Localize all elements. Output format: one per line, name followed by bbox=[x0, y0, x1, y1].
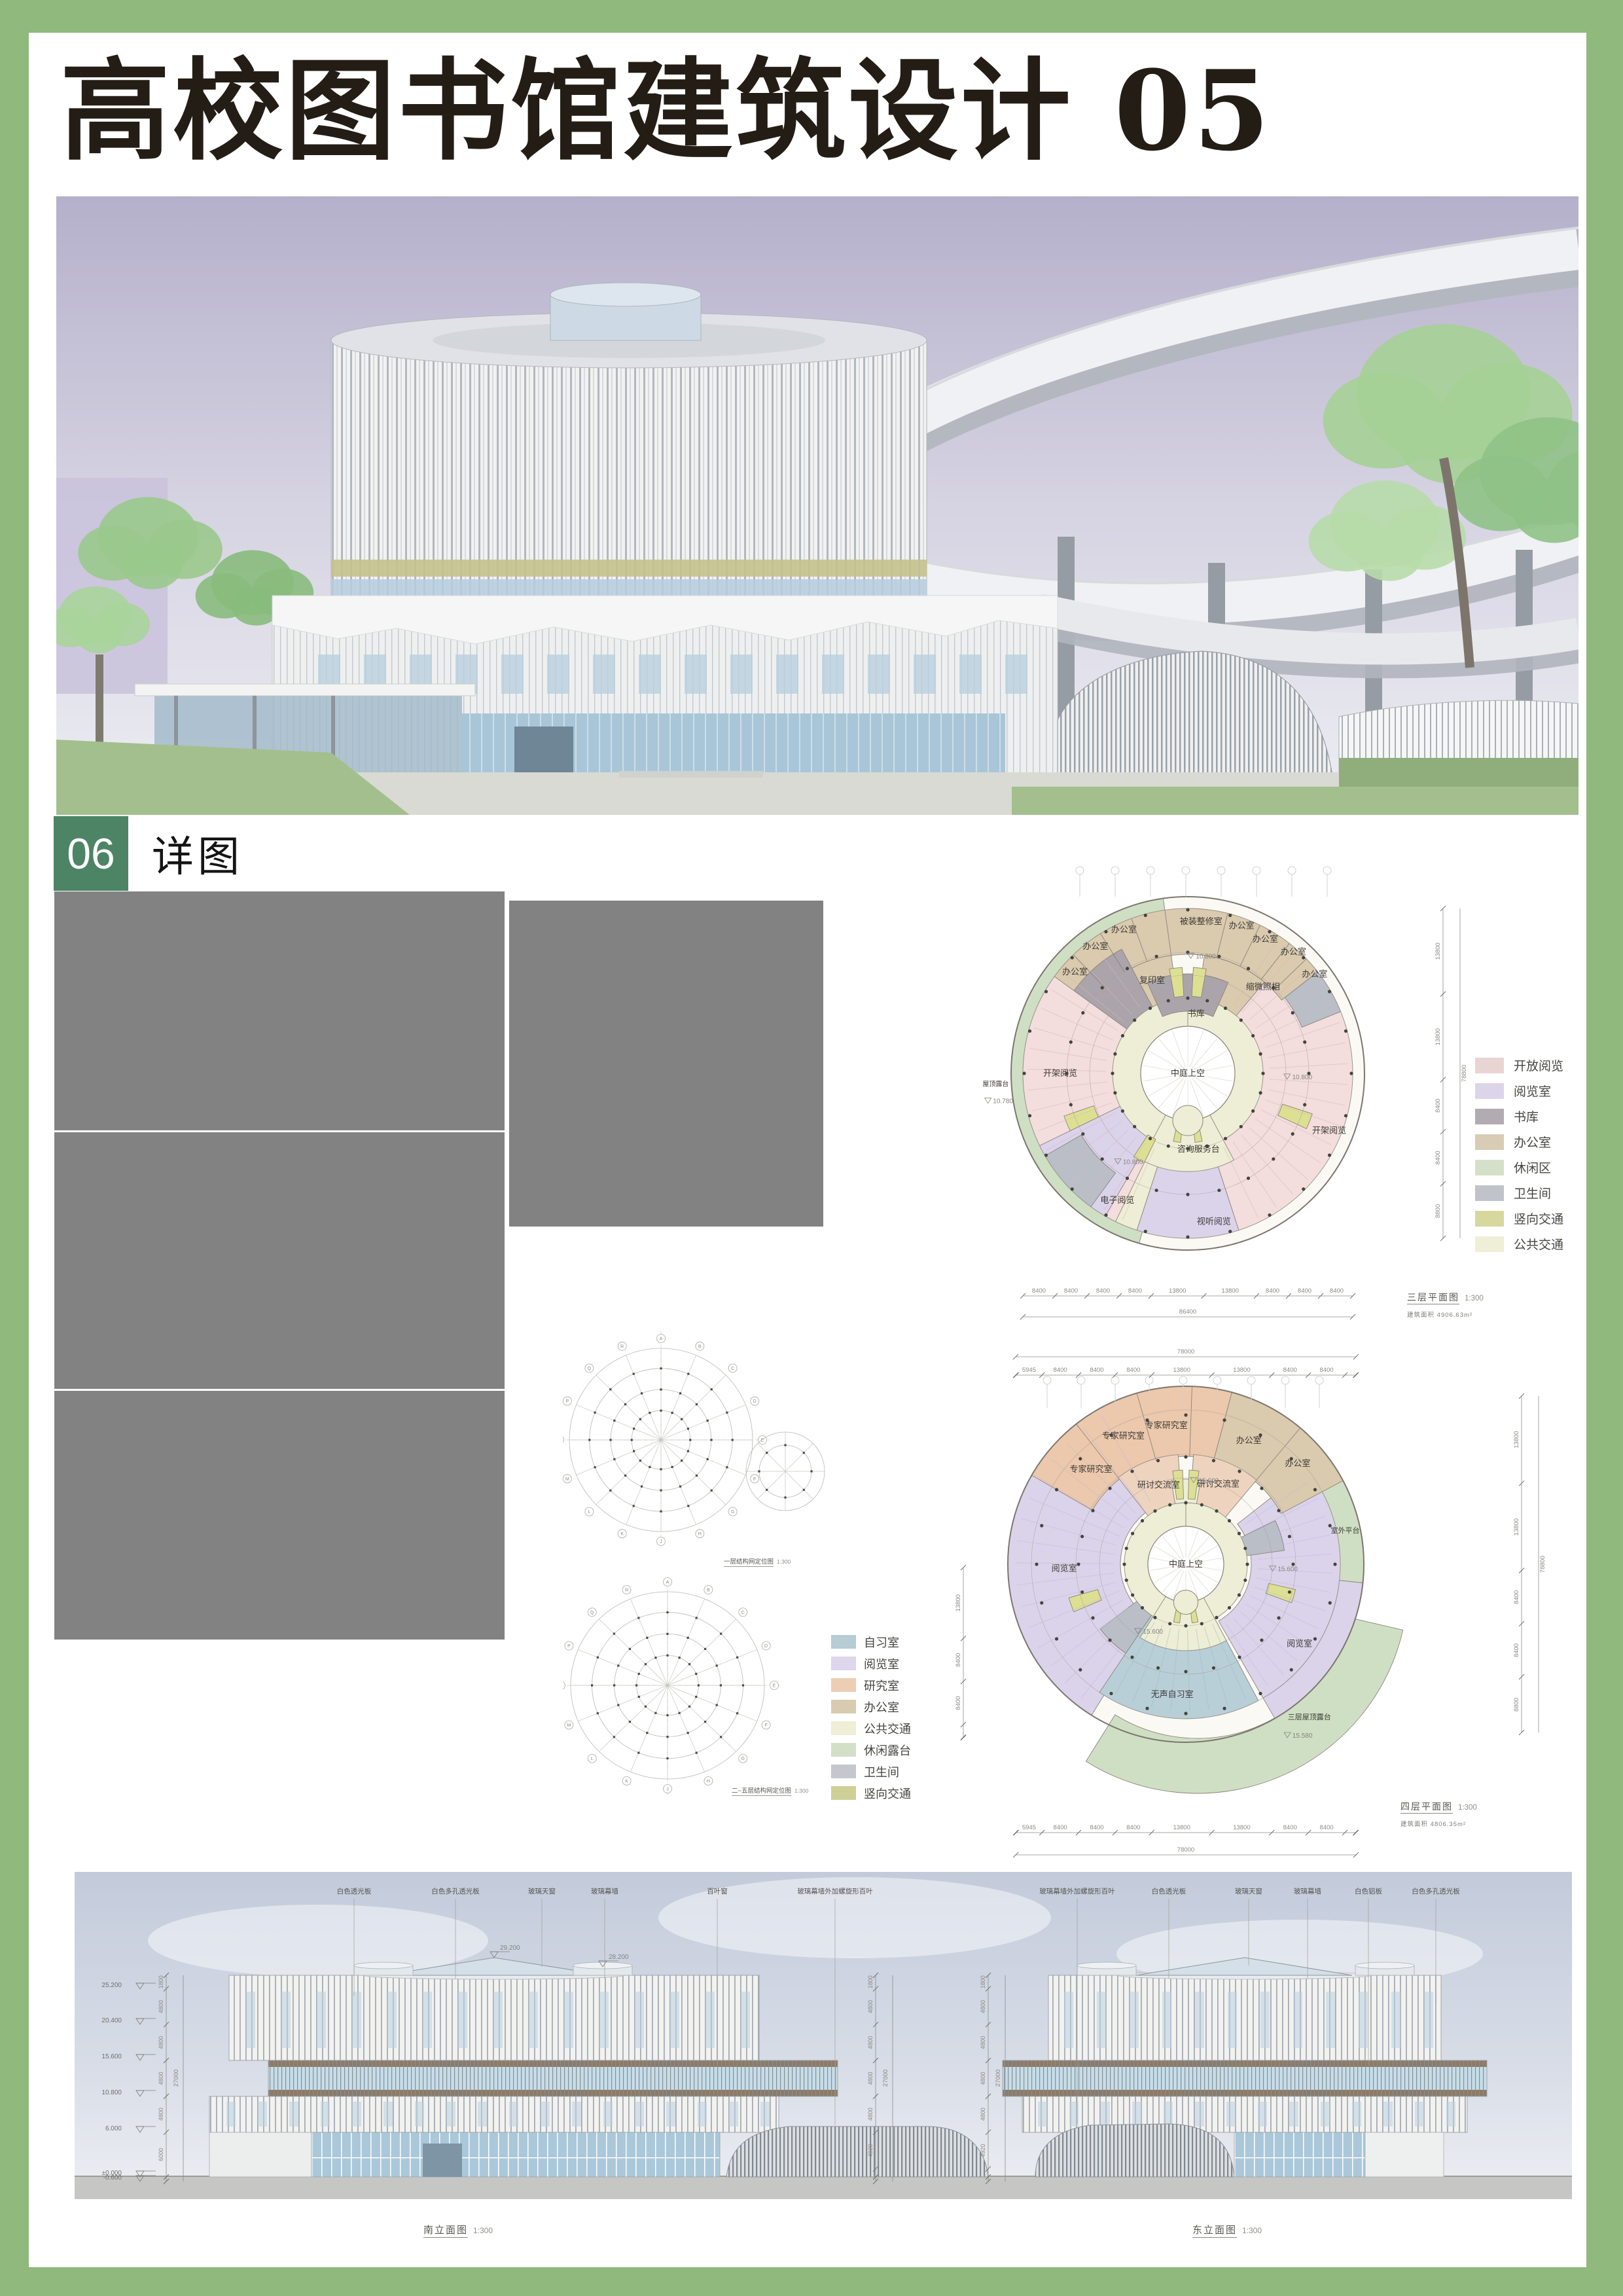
column-dot bbox=[1091, 1616, 1094, 1619]
window-slot bbox=[705, 1992, 715, 2048]
column-dot bbox=[1108, 1486, 1111, 1490]
column-dot bbox=[1071, 956, 1074, 960]
axis-bubble bbox=[1111, 867, 1119, 874]
grid-radial bbox=[596, 1375, 661, 1440]
column-dot bbox=[1130, 1469, 1133, 1473]
grid-column-dot bbox=[613, 1736, 615, 1738]
grid-column-dot bbox=[633, 1450, 635, 1452]
grid-radial bbox=[596, 1440, 661, 1505]
callout-label: 白色铝板 bbox=[1355, 1887, 1383, 1895]
grid-column-dot bbox=[688, 1706, 690, 1708]
east-base-glass bbox=[1234, 2132, 1365, 2177]
column-dot bbox=[1167, 1144, 1170, 1147]
tree-foliage bbox=[1357, 529, 1423, 581]
window-slot bbox=[352, 2102, 361, 2126]
level-value: 10.800 bbox=[101, 2089, 122, 2096]
level-value: 10.800 bbox=[1292, 1074, 1312, 1081]
grid-column-dot bbox=[613, 1458, 615, 1460]
window-slot bbox=[1424, 1992, 1433, 2048]
grid-column-dot bbox=[688, 1663, 690, 1665]
column-dot bbox=[1040, 1524, 1043, 1527]
column-dot bbox=[1251, 1034, 1255, 1037]
grid-radial bbox=[626, 1355, 661, 1440]
lower-drum-window bbox=[776, 655, 798, 694]
axis-bubble bbox=[1217, 867, 1225, 874]
grid-column-dot bbox=[679, 1392, 681, 1394]
grid-column-dot bbox=[732, 1439, 734, 1441]
dim-value: 4800 bbox=[867, 2108, 874, 2121]
legend-label: 办公室 bbox=[864, 1698, 899, 1715]
level-value: 29.200 bbox=[500, 1945, 520, 1952]
plan4-caption-scale: 1:300 bbox=[1458, 1804, 1477, 1812]
south-elev-caption-name: 南立面图 bbox=[423, 2225, 468, 2238]
dim-value: 8400 bbox=[1054, 1824, 1067, 1831]
dim-value: 4800 bbox=[158, 2000, 164, 2013]
grid-column-dot bbox=[716, 1664, 718, 1666]
window-slot bbox=[317, 1992, 326, 2048]
south-elev-caption-scale: 1:300 bbox=[473, 2226, 493, 2235]
callout-label: 玻璃幕墙 bbox=[591, 1887, 618, 1895]
room-label: 被装整修室 bbox=[1180, 916, 1222, 926]
window-slot bbox=[741, 1992, 750, 2048]
legend-label: 研究室 bbox=[864, 1677, 899, 1694]
window-slot bbox=[1352, 2102, 1361, 2126]
plan-group: 办公室办公室办公室被装整修室办公室办公室办公室办公室复印室缩微照相书库中庭上空咨… bbox=[982, 867, 1364, 1250]
legend-label: 自习室 bbox=[864, 1634, 899, 1651]
grid-column-dot bbox=[613, 1684, 615, 1686]
grid-column-dot bbox=[803, 1489, 805, 1491]
room-label: 专家研究室 bbox=[1145, 1420, 1188, 1430]
level-value: 15.600 bbox=[1277, 1566, 1298, 1573]
window-slot bbox=[572, 2102, 581, 2126]
axis-bubble bbox=[1076, 867, 1084, 874]
column-dot bbox=[1071, 1187, 1074, 1191]
window-slot bbox=[1446, 2102, 1455, 2126]
window-slot bbox=[670, 1992, 679, 2048]
grid-column-dot bbox=[633, 1505, 635, 1507]
grid-column-dot bbox=[617, 1704, 619, 1706]
axis-bubble bbox=[563, 1436, 564, 1444]
column-dot bbox=[1261, 1071, 1264, 1075]
axis-bubble bbox=[1077, 1376, 1085, 1384]
east-annex-louver bbox=[1035, 2124, 1234, 2177]
structure-diagram-2-caption: 二~五层结构网定位图1:300 bbox=[732, 1785, 808, 1795]
room-label: 办公室 bbox=[1285, 1458, 1310, 1468]
column-dot bbox=[1243, 1547, 1247, 1550]
section-title: 详图 bbox=[152, 823, 243, 884]
grid-column-dot bbox=[633, 1373, 635, 1375]
grid-column-dot bbox=[704, 1648, 706, 1650]
annex-grid-radial bbox=[785, 1444, 813, 1471]
column-dot bbox=[1238, 1655, 1241, 1659]
dim-value: 1800 bbox=[158, 1975, 164, 1988]
dim-value: 4920 bbox=[980, 2144, 986, 2157]
grid-column-dot bbox=[609, 1439, 611, 1441]
dim-value: 4800 bbox=[158, 2036, 164, 2049]
window-slot bbox=[698, 2102, 707, 2126]
grid-column-dot bbox=[666, 1714, 668, 1716]
column-dot bbox=[1228, 1519, 1231, 1522]
axis-letter: D bbox=[764, 1644, 768, 1649]
room-label: 中庭上空 bbox=[1171, 1068, 1205, 1078]
column-dot bbox=[1168, 1622, 1171, 1625]
axis-letter: E bbox=[761, 1439, 764, 1443]
grid-column-dot bbox=[726, 1466, 728, 1468]
dim-total: 78800 bbox=[1461, 1065, 1468, 1082]
grid-column-dot bbox=[629, 1648, 631, 1650]
grid-column-dot bbox=[720, 1633, 722, 1635]
grid-radial bbox=[668, 1685, 757, 1721]
column-dot bbox=[1156, 1666, 1160, 1670]
plan3-caption: 三层平面图1:300 建筑面积 4906.63m² bbox=[1407, 1291, 1484, 1319]
column-dot bbox=[1055, 1637, 1058, 1640]
grid-column-dot bbox=[720, 1736, 722, 1738]
callout-label: 百叶窗 bbox=[707, 1887, 728, 1895]
window-slot bbox=[289, 2102, 298, 2126]
axis-bubble bbox=[1213, 1376, 1221, 1384]
window-slot bbox=[352, 1992, 361, 2048]
legend-swatch bbox=[831, 1700, 856, 1713]
dim-value: 8400 bbox=[955, 1696, 962, 1710]
column-dot bbox=[1238, 1469, 1241, 1473]
grid-column-dot bbox=[687, 1637, 689, 1639]
level-value: 15.580 bbox=[1293, 1732, 1313, 1740]
grid-column-dot bbox=[716, 1704, 718, 1706]
legend-swatch bbox=[1475, 1083, 1504, 1099]
column-dot bbox=[1153, 1616, 1156, 1619]
column-dot bbox=[1104, 1213, 1107, 1217]
column-dot bbox=[1186, 908, 1189, 911]
grid-radial bbox=[626, 1440, 661, 1524]
legend-item: 自习室 bbox=[831, 1631, 911, 1653]
floor-plan-4-drawing: 专家研究室专家研究室专家研究室办公室办公室研讨交流室研讨交流室阅览室阅览室室外平… bbox=[929, 1345, 1558, 1875]
axis-bubble bbox=[1288, 867, 1296, 874]
axis-letter: K bbox=[620, 1532, 624, 1537]
window-slot bbox=[226, 2102, 236, 2126]
roof-cylinder-top bbox=[1355, 1962, 1414, 1969]
axis-letter: H bbox=[698, 1532, 702, 1537]
column-dot bbox=[1028, 1114, 1031, 1117]
level-value: 15.600 bbox=[101, 2053, 122, 2060]
hedge bbox=[1339, 758, 1578, 787]
dim-value: 8400 bbox=[1298, 1287, 1311, 1295]
column-dot bbox=[1125, 1579, 1128, 1582]
column-dot bbox=[1228, 1606, 1231, 1609]
column-dot bbox=[1133, 1125, 1136, 1128]
column-dot bbox=[1313, 1488, 1317, 1491]
column-dot bbox=[1258, 1091, 1262, 1094]
plan4-legend: 自习室阅览室研究室办公室公共交通休闲露台卫生间竖向交通 bbox=[831, 1631, 911, 1804]
grid-column-dot bbox=[613, 1633, 615, 1635]
dim-value: 8400 bbox=[1266, 1287, 1279, 1295]
window-slot bbox=[1195, 1992, 1204, 2048]
legend-swatch bbox=[1475, 1134, 1504, 1150]
lower-drum-window bbox=[959, 655, 982, 694]
column-dot bbox=[1245, 1562, 1249, 1566]
column-dot bbox=[1251, 1109, 1255, 1113]
column-dot bbox=[1144, 914, 1147, 917]
level-value: 15.600 bbox=[1198, 1477, 1219, 1484]
dim-value: 13800 bbox=[1513, 1518, 1520, 1535]
olive-band bbox=[331, 560, 927, 577]
roof-cylinder-top bbox=[573, 1962, 632, 1969]
column-dot bbox=[1149, 1137, 1152, 1140]
column-dot bbox=[1145, 1707, 1149, 1710]
room-label: 室外平台 bbox=[1331, 1526, 1360, 1535]
dim-total: 78800 bbox=[1539, 1556, 1546, 1573]
grid-column-dot bbox=[666, 1736, 668, 1738]
legend-swatch bbox=[1475, 1236, 1504, 1252]
column-dot bbox=[1141, 1606, 1144, 1609]
axis-bubble bbox=[1147, 867, 1154, 874]
grid-column-dot bbox=[711, 1490, 713, 1492]
window-slot bbox=[1130, 1992, 1139, 2048]
legend-swatch bbox=[831, 1635, 856, 1649]
structure-grid-diagram-2: ABCDEFGHJKLMNPQR bbox=[563, 1577, 838, 1813]
elevations-drawing: 25.20020.40015.60010.8006.000±0.000-0.60… bbox=[56, 1869, 1578, 2261]
window-slot bbox=[493, 1992, 503, 2048]
placeholder-image bbox=[509, 901, 823, 1227]
column-dot bbox=[1184, 1501, 1187, 1504]
roof-cylinder-top bbox=[1077, 1962, 1136, 1969]
room-label: 专家研究室 bbox=[1070, 1464, 1113, 1474]
plan4-caption: 四层平面图1:300 建筑面积 4806.35m² bbox=[1400, 1800, 1477, 1828]
window-slot bbox=[1415, 2102, 1424, 2126]
column-dot bbox=[1240, 1125, 1243, 1128]
grid-radial bbox=[668, 1649, 757, 1685]
grid-radial bbox=[578, 1649, 668, 1685]
lawn-right bbox=[1012, 787, 1578, 815]
grid-column-dot bbox=[784, 1444, 786, 1446]
column-dot bbox=[1121, 1034, 1124, 1037]
legend-label: 卫生间 bbox=[864, 1763, 899, 1780]
column-dot bbox=[1149, 1007, 1152, 1010]
dim-value: 8400 bbox=[1435, 1151, 1442, 1164]
column-dot bbox=[1069, 1041, 1073, 1044]
column-dot bbox=[1222, 1418, 1226, 1422]
window-slot bbox=[281, 1992, 291, 2048]
legend-label: 竖向交通 bbox=[1514, 1210, 1563, 1227]
column-dot bbox=[1186, 1193, 1189, 1196]
grid-column-dot bbox=[613, 1420, 615, 1422]
plan3-area-value: 4906.63m² bbox=[1437, 1312, 1472, 1319]
grid-column-dot bbox=[654, 1657, 656, 1659]
callout-label: 玻璃幕墙外加螺旋形百叶 bbox=[797, 1887, 873, 1895]
column-dot bbox=[1222, 1707, 1226, 1710]
main-render-image bbox=[56, 196, 1578, 815]
column-dot bbox=[1205, 999, 1209, 1002]
grid-column-dot bbox=[597, 1712, 599, 1714]
column-dot bbox=[1044, 1153, 1048, 1157]
window-slot bbox=[383, 2102, 393, 2126]
column-dot bbox=[1238, 1532, 1241, 1535]
column-dot bbox=[1313, 1637, 1317, 1640]
legend-swatch bbox=[1475, 1185, 1504, 1201]
room-label: 屋顶露台 bbox=[982, 1079, 1008, 1088]
dim-value: 8400 bbox=[1090, 1824, 1103, 1831]
column-dot bbox=[1101, 986, 1104, 990]
dim-value: 8400 bbox=[1320, 1824, 1334, 1831]
room-label: 开架阅览 bbox=[1043, 1068, 1077, 1078]
axis-bubble bbox=[1315, 1376, 1323, 1384]
room-label: 办公室 bbox=[1229, 920, 1255, 930]
plan3-area-label: 建筑面积 bbox=[1407, 1312, 1435, 1319]
legend-item: 竖向交通 bbox=[831, 1782, 911, 1804]
column-dot bbox=[1238, 1593, 1241, 1596]
dim-value: 8800 bbox=[1513, 1698, 1520, 1712]
window-slot bbox=[1162, 1992, 1171, 2048]
elevation-ground bbox=[75, 2176, 1572, 2199]
dim-value: 8400 bbox=[1126, 1367, 1140, 1374]
page-title: 高校图书馆建筑设计 05 bbox=[60, 41, 1500, 181]
placeholder-image bbox=[54, 1132, 505, 1389]
window-slot bbox=[635, 1992, 644, 2048]
column-dot bbox=[1215, 1509, 1218, 1513]
column-dot bbox=[1126, 967, 1129, 970]
room-label: 无声自习室 bbox=[1151, 1689, 1194, 1699]
legend-swatch bbox=[1475, 1058, 1504, 1073]
dim-value: 8400 bbox=[1090, 1367, 1103, 1374]
column-dot bbox=[1131, 1532, 1134, 1535]
axis-letter: A bbox=[660, 1337, 663, 1342]
column-dot bbox=[1186, 996, 1189, 999]
legend-label: 公共交通 bbox=[864, 1720, 911, 1737]
window-slot bbox=[458, 1992, 467, 2048]
dim-value: 13800 bbox=[1513, 1431, 1520, 1448]
callout-label: 白色多孔透光板 bbox=[1412, 1887, 1460, 1895]
dim-value: 4800 bbox=[867, 2036, 874, 2049]
axis-letter: K bbox=[625, 1779, 628, 1784]
window-slot bbox=[1326, 1992, 1335, 2048]
poster-page: { "page": { "background_color": "#8fb97d… bbox=[0, 0, 1623, 2296]
dim-value: 5945 bbox=[1022, 1824, 1036, 1831]
column-dot bbox=[1215, 1616, 1218, 1619]
window-slot bbox=[321, 2102, 330, 2126]
column-dot bbox=[1069, 1103, 1073, 1106]
dim-value: 8400 bbox=[1096, 1287, 1110, 1295]
column-dot bbox=[1184, 1455, 1187, 1458]
tree-foliage bbox=[122, 542, 182, 590]
plan-group: 专家研究室专家研究室专家研究室办公室办公室研讨交流室研讨交流室阅览室阅览室室外平… bbox=[1008, 1376, 1403, 1793]
axis-letter: Q bbox=[588, 1367, 592, 1371]
grid-radial bbox=[668, 1685, 736, 1751]
plan3-area: 建筑面积 4906.63m² bbox=[1407, 1310, 1484, 1319]
room-label: 办公室 bbox=[1281, 946, 1306, 956]
axis-letter: M bbox=[565, 1477, 569, 1482]
grid-radial bbox=[661, 1375, 726, 1440]
axis-letter: C bbox=[741, 1611, 745, 1615]
column-dot bbox=[1243, 1579, 1247, 1582]
grid-radial bbox=[599, 1685, 668, 1751]
axis-bubble bbox=[1247, 1376, 1255, 1384]
axis-letter: J bbox=[666, 1787, 669, 1792]
window-slot bbox=[1228, 1992, 1237, 2048]
column-dot bbox=[1091, 1509, 1094, 1512]
legend-label: 开放阅览 bbox=[1514, 1056, 1563, 1074]
legend-item: 书库 bbox=[1475, 1103, 1563, 1129]
grid-column-dot bbox=[660, 1489, 662, 1491]
grid-column-dot bbox=[635, 1684, 637, 1686]
column-dot bbox=[1212, 1459, 1215, 1462]
column-dot bbox=[1028, 1030, 1031, 1033]
grid-column-dot bbox=[679, 1486, 681, 1488]
room-label: 开架阅览 bbox=[1312, 1125, 1346, 1135]
column-dot bbox=[1224, 1137, 1227, 1140]
callout-label: 白色透光板 bbox=[337, 1887, 372, 1895]
window-slot bbox=[423, 1992, 432, 2048]
level-value: 10.800 bbox=[1196, 953, 1216, 960]
window-slot bbox=[509, 2102, 518, 2126]
grid-column-dot bbox=[766, 1452, 768, 1454]
window-slot bbox=[1097, 1992, 1106, 2048]
room-label: 书库 bbox=[1188, 1009, 1205, 1018]
window-slot bbox=[1164, 2102, 1173, 2126]
dim-value: 4920 bbox=[867, 2144, 874, 2157]
legend-swatch bbox=[831, 1786, 856, 1800]
column-dot bbox=[1277, 1509, 1280, 1512]
column-dot bbox=[1044, 990, 1048, 993]
floor-plan-3-drawing: 办公室办公室办公室被装整修室办公室办公室办公室办公室复印室缩微照相书库中庭上空咨… bbox=[982, 864, 1492, 1352]
room-label: 办公室 bbox=[1082, 941, 1108, 951]
level-value: 15.600 bbox=[1143, 1628, 1163, 1636]
annex-grid-radial bbox=[758, 1444, 785, 1471]
annex-grid-radial bbox=[785, 1471, 813, 1499]
east-elev-caption-name: 东立面图 bbox=[1192, 2225, 1237, 2238]
grid-radial bbox=[668, 1619, 736, 1685]
legend-swatch bbox=[831, 1765, 856, 1778]
level-value: 28.200 bbox=[609, 1954, 629, 1961]
column-dot bbox=[1258, 1052, 1262, 1056]
east-elevation-caption: 东立面图1:300 bbox=[1129, 2223, 1325, 2236]
window-slot bbox=[478, 2102, 487, 2126]
grid-column-dot bbox=[704, 1721, 706, 1723]
south-base-wall bbox=[209, 2132, 312, 2177]
axis-letter: B bbox=[698, 1344, 702, 1349]
grid-column-dot bbox=[671, 1412, 673, 1414]
grid-column-dot bbox=[654, 1712, 656, 1714]
grid-radial bbox=[668, 1599, 705, 1685]
column-dot bbox=[1126, 1177, 1129, 1180]
column-dot bbox=[1111, 1071, 1114, 1075]
column-dot bbox=[1268, 930, 1271, 933]
legend-item: 休闲区 bbox=[1475, 1155, 1563, 1180]
column-dot bbox=[1113, 1091, 1116, 1094]
column-dot bbox=[1288, 1535, 1291, 1538]
dim-value: 8400 bbox=[1320, 1367, 1334, 1374]
grid-column-dot bbox=[679, 1657, 681, 1659]
window-slot bbox=[760, 2102, 770, 2126]
window-slot bbox=[666, 2102, 675, 2126]
legend-item: 卫生间 bbox=[831, 1761, 911, 1782]
window-slot bbox=[564, 1992, 573, 2048]
grid-column-dot bbox=[687, 1732, 689, 1734]
axis-bubble bbox=[563, 1681, 565, 1690]
structure-diagram-1-caption: 一层结构网定位图1:300 bbox=[724, 1556, 791, 1566]
dim-value: 5945 bbox=[1022, 1367, 1036, 1374]
axis-bubble bbox=[1323, 867, 1331, 874]
column-dot bbox=[1184, 1712, 1187, 1715]
dim-value: 8400 bbox=[1513, 1590, 1520, 1604]
roof-cap-top bbox=[550, 283, 701, 306]
column-dot bbox=[1228, 1230, 1232, 1233]
window-slot bbox=[599, 1992, 609, 2048]
grid-column-dot bbox=[660, 1468, 662, 1470]
grid-column-dot bbox=[637, 1751, 639, 1753]
sd1-caption-name: 一层结构网定位图 bbox=[724, 1558, 774, 1567]
placeholder-image bbox=[54, 891, 505, 1130]
grid-column-dot bbox=[687, 1505, 689, 1507]
window-slot bbox=[387, 1992, 397, 2048]
